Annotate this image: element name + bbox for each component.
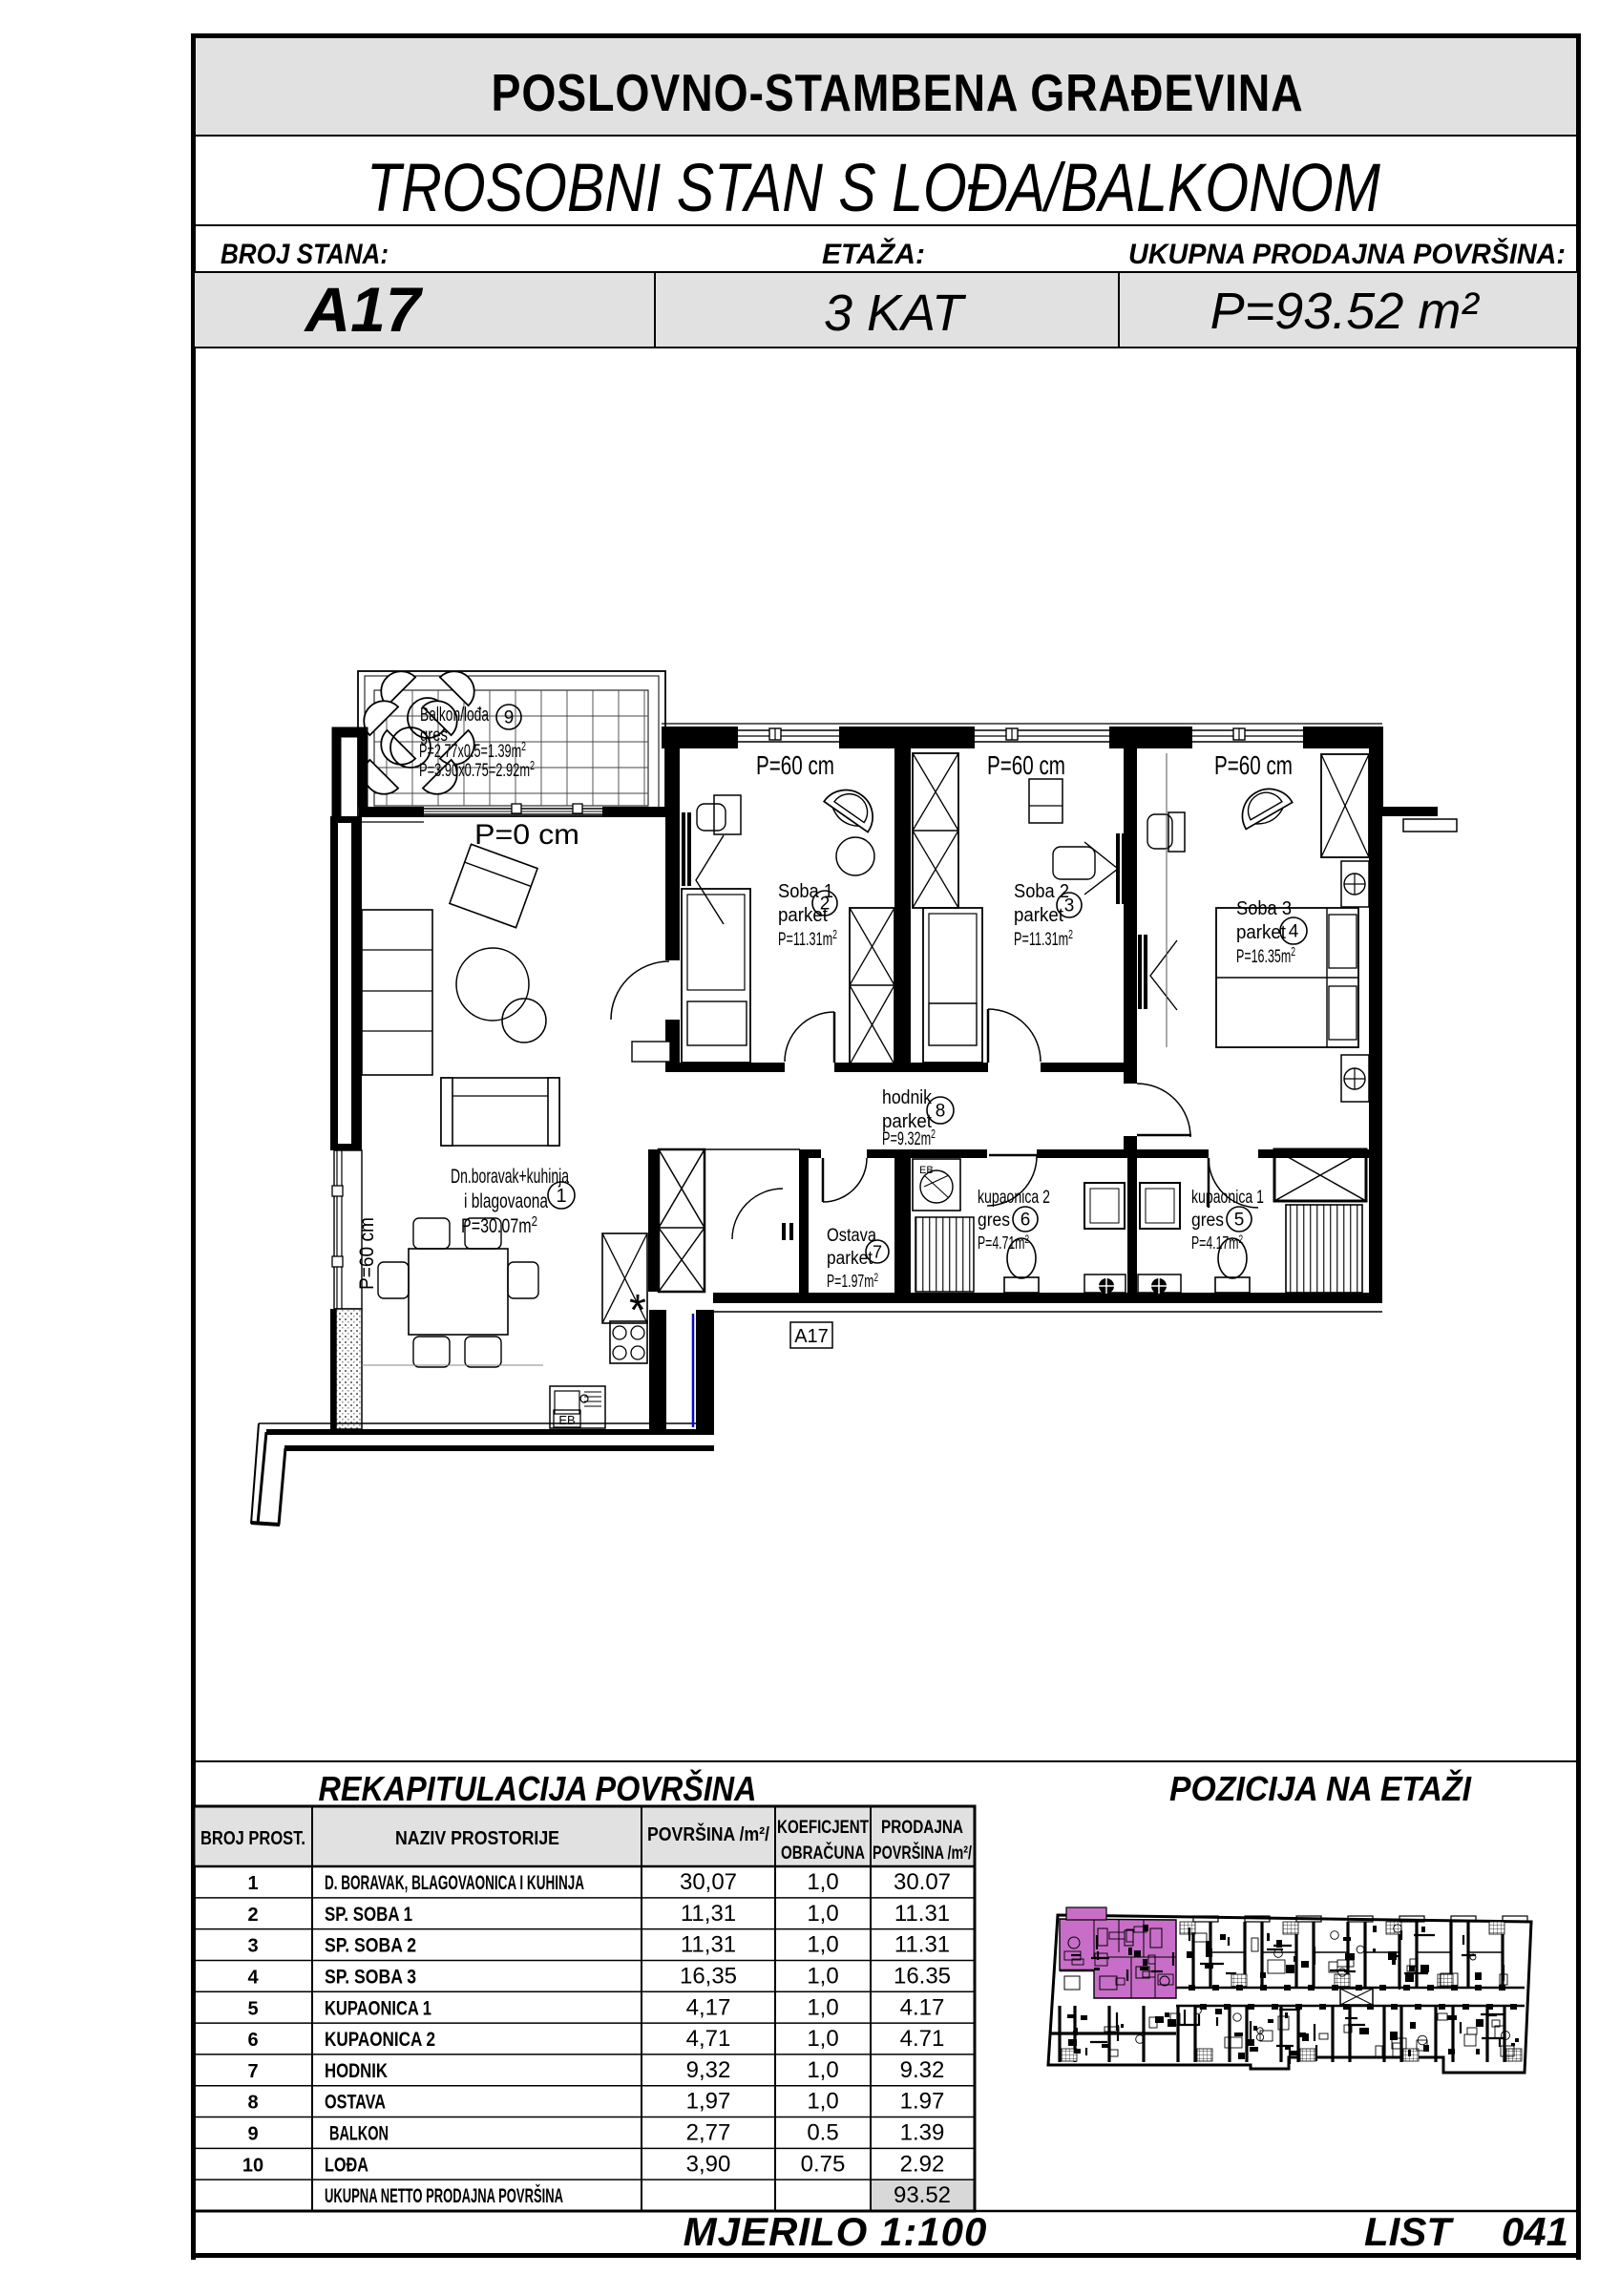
svg-text:NAZIV PROSTORIJE: NAZIV PROSTORIJE: [395, 1828, 559, 1849]
svg-text:P=4.71m2: P=4.71m2: [978, 1232, 1029, 1253]
svg-text:KUPAONICA 2: KUPAONICA 2: [325, 2029, 435, 2051]
svg-text:POZICIJA NA ETAŽI: POZICIJA NA ETAŽI: [1169, 1768, 1472, 1808]
svg-text:1: 1: [247, 1873, 258, 1894]
svg-text:8: 8: [247, 2093, 258, 2114]
svg-text:hodnik: hodnik: [882, 1087, 933, 1108]
svg-text:i blagovaona: i blagovaona: [464, 1190, 548, 1212]
svg-text:Soba 2: Soba 2: [1014, 881, 1069, 902]
svg-text:6: 6: [247, 2030, 258, 2051]
svg-text:2,77: 2,77: [686, 2120, 731, 2146]
svg-text:P=60 cm: P=60 cm: [1214, 750, 1293, 780]
svg-text:30,07: 30,07: [680, 1869, 737, 1895]
svg-text:16.35: 16.35: [894, 1963, 951, 1989]
svg-text:kupaonica 1: kupaonica 1: [1191, 1188, 1264, 1208]
svg-text:1,0: 1,0: [807, 2026, 838, 2052]
svg-text:7: 7: [873, 1242, 882, 1261]
svg-text:SP. SOBA 1: SP. SOBA 1: [325, 1904, 412, 1926]
svg-text:3: 3: [1064, 896, 1075, 916]
svg-text:5: 5: [247, 1998, 258, 2019]
svg-text:16,35: 16,35: [680, 1963, 737, 1989]
svg-text:P=1.97m2: P=1.97m2: [827, 1271, 878, 1291]
svg-text:9,32: 9,32: [686, 2057, 731, 2083]
svg-text:11.31: 11.31: [894, 1901, 950, 1927]
svg-text:Dn.boravak+kuhinja: Dn.boravak+kuhinja: [451, 1166, 569, 1188]
svg-text:1,0: 1,0: [807, 1963, 838, 1989]
svg-text:1,0: 1,0: [807, 1869, 838, 1895]
svg-text:KUPAONICA 1: KUPAONICA 1: [325, 1997, 431, 2019]
svg-text:3 KAT: 3 KAT: [824, 284, 967, 342]
svg-text:POSLOVNO-STAMBENA GRAĐEVINA: POSLOVNO-STAMBENA GRAĐEVINA: [492, 63, 1304, 122]
svg-text:1,0: 1,0: [807, 2057, 838, 2083]
svg-text:MJERILO 1:100: MJERILO 1:100: [684, 2209, 988, 2254]
svg-text:4,71: 4,71: [686, 2026, 731, 2052]
svg-text:30.07: 30.07: [894, 1869, 951, 1895]
svg-text:6: 6: [1020, 1211, 1031, 1231]
svg-text:11,31: 11,31: [681, 1901, 736, 1927]
svg-text:*: *: [629, 1285, 646, 1335]
svg-text:POVRŠINA /m²/: POVRŠINA /m²/: [873, 1843, 973, 1864]
svg-text:P=93.52 m²: P=93.52 m²: [1210, 283, 1481, 340]
svg-text:LIST: LIST: [1364, 2209, 1454, 2254]
svg-text:A17: A17: [794, 1326, 829, 1347]
svg-text:3: 3: [247, 1936, 258, 1957]
svg-text:8: 8: [936, 1102, 946, 1122]
svg-text:4.71: 4.71: [900, 2026, 945, 2052]
svg-text:11,31: 11,31: [681, 1932, 736, 1958]
svg-text:UKUPNA NETTO PRODAJNA POVRŠINA: UKUPNA NETTO PRODAJNA POVRŠINA: [325, 2184, 563, 2207]
svg-text:1,0: 1,0: [807, 2089, 838, 2115]
svg-text:A17: A17: [303, 274, 423, 345]
svg-text:PRODAJNA: PRODAJNA: [881, 1818, 963, 1838]
svg-text:KOEFICJENT: KOEFICJENT: [777, 1818, 869, 1838]
svg-text:93.52: 93.52: [894, 2182, 951, 2208]
svg-text:P=16.35m2: P=16.35m2: [1236, 944, 1295, 967]
svg-text:kupaonica 2: kupaonica 2: [978, 1188, 1050, 1208]
svg-text:P=60 cm: P=60 cm: [756, 750, 834, 780]
svg-text:REKAPITULACIJA POVRŠINA: REKAPITULACIJA POVRŠINA: [319, 1768, 757, 1808]
svg-text:P=0 cm: P=0 cm: [474, 819, 579, 851]
svg-text:EB: EB: [558, 1413, 575, 1427]
svg-text:TROSOBNI STAN S LOĐA/BALKONOM: TROSOBNI STAN S LOĐA/BALKONOM: [367, 151, 1381, 226]
svg-text:1,0: 1,0: [807, 1994, 838, 2020]
svg-text:OBRAČUNA: OBRAČUNA: [781, 1843, 865, 1864]
svg-text:gres: gres: [1191, 1211, 1224, 1231]
svg-text:BROJ PROST.: BROJ PROST.: [200, 1828, 305, 1849]
svg-text:3,90: 3,90: [686, 2151, 731, 2177]
svg-text:10: 10: [242, 2155, 263, 2176]
svg-text:1,0: 1,0: [807, 1901, 838, 1927]
svg-text:parket: parket: [1236, 922, 1286, 943]
svg-text:4: 4: [1289, 922, 1299, 942]
svg-text:4: 4: [247, 1967, 259, 1988]
svg-text:0.75: 0.75: [801, 2151, 846, 2177]
svg-text:P=9.32m2: P=9.32m2: [882, 1127, 936, 1149]
svg-text:9.32: 9.32: [900, 2057, 945, 2083]
svg-text:2.92: 2.92: [900, 2151, 945, 2177]
svg-text:OSTAVA: OSTAVA: [325, 2092, 386, 2114]
svg-text:11.31: 11.31: [894, 1932, 950, 1958]
svg-text:9: 9: [247, 2124, 258, 2145]
svg-text:P=60 cm: P=60 cm: [356, 1217, 378, 1290]
svg-text:P=11.31m2: P=11.31m2: [778, 927, 837, 950]
svg-text:041: 041: [1502, 2209, 1568, 2254]
svg-text:BROJ STANA:: BROJ STANA:: [221, 239, 389, 270]
svg-text:POVRŠINA /m²/: POVRŠINA /m²/: [647, 1822, 769, 1845]
svg-text:1,97: 1,97: [686, 2089, 731, 2115]
svg-text:gres: gres: [978, 1211, 1010, 1231]
svg-text:SP. SOBA 3: SP. SOBA 3: [325, 1966, 416, 1988]
svg-text:SP. SOBA 2: SP. SOBA 2: [325, 1935, 416, 1957]
svg-text:1.39: 1.39: [900, 2120, 945, 2146]
svg-text:7: 7: [247, 2061, 258, 2082]
svg-text:4.17: 4.17: [900, 1994, 945, 2020]
svg-text:2: 2: [247, 1905, 258, 1926]
svg-text:P=2.77x0.5=1.39m2: P=2.77x0.5=1.39m2: [419, 739, 526, 762]
svg-text:D. BORAVAK, BLAGOVAONICA I KUH: D. BORAVAK, BLAGOVAONICA I KUHINJA: [325, 1872, 584, 1894]
svg-text:1,0: 1,0: [807, 1932, 838, 1958]
svg-text:9: 9: [504, 708, 515, 728]
svg-text:P=4.17m2: P=4.17m2: [1191, 1232, 1243, 1253]
svg-text:1.97: 1.97: [900, 2089, 945, 2115]
svg-text:UKUPNA PRODAJNA POVRŠINA:: UKUPNA PRODAJNA POVRŠINA:: [1128, 238, 1566, 270]
svg-text:P=60 cm: P=60 cm: [987, 750, 1065, 780]
svg-text:BALKON: BALKON: [329, 2123, 389, 2145]
svg-text:EB: EB: [919, 1165, 934, 1176]
svg-text:LOĐA: LOĐA: [325, 2154, 368, 2176]
svg-text:0.5: 0.5: [807, 2120, 838, 2146]
svg-text:Soba 3: Soba 3: [1236, 898, 1292, 919]
svg-text:4,17: 4,17: [686, 1994, 731, 2020]
svg-text:HODNIK: HODNIK: [325, 2060, 388, 2082]
svg-text:parket: parket: [1014, 905, 1063, 926]
svg-text:P=11.31m2: P=11.31m2: [1014, 927, 1073, 950]
svg-text:ETAŽA:: ETAŽA:: [822, 238, 925, 270]
svg-text:5: 5: [1234, 1211, 1245, 1231]
svg-text:1: 1: [556, 1186, 566, 1207]
svg-text:P=30.07m2: P=30.07m2: [461, 1213, 537, 1237]
svg-text:Balkon/lođa: Balkon/lođa: [420, 705, 490, 726]
svg-text:P=3.90x0.75=2.92m2: P=3.90x0.75=2.92m2: [419, 758, 535, 781]
svg-text:parket: parket: [778, 905, 828, 926]
